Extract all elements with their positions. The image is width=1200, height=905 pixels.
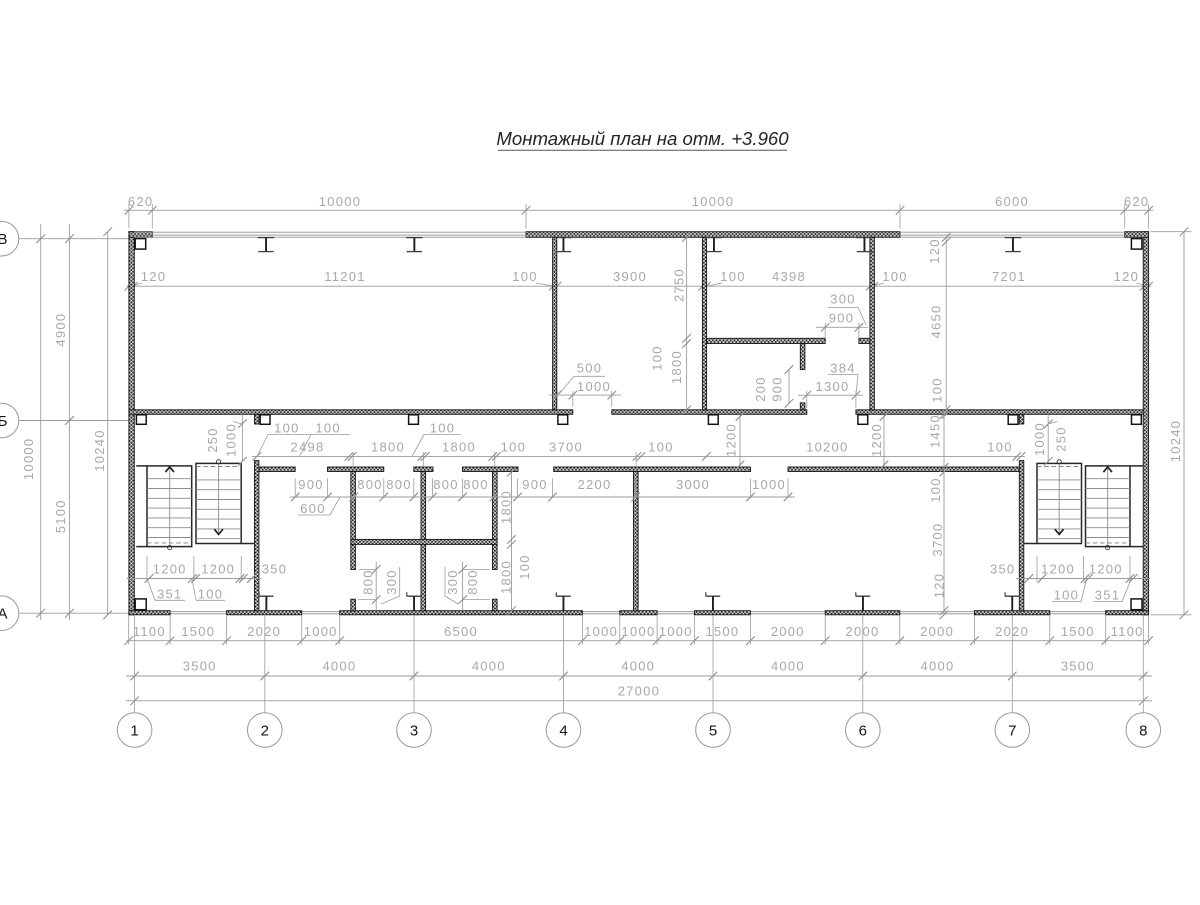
svg-text:1000: 1000 <box>577 379 611 394</box>
svg-text:300: 300 <box>445 569 460 594</box>
svg-text:100: 100 <box>430 421 455 436</box>
svg-text:2000: 2000 <box>771 624 805 639</box>
svg-text:620: 620 <box>1124 194 1149 209</box>
svg-text:250: 250 <box>1053 426 1068 451</box>
svg-text:8: 8 <box>1139 722 1147 739</box>
svg-text:7201: 7201 <box>992 269 1026 284</box>
svg-text:900: 900 <box>298 477 323 492</box>
svg-text:Б: Б <box>0 413 8 430</box>
svg-text:2750: 2750 <box>672 268 687 302</box>
svg-text:1450: 1450 <box>927 414 942 448</box>
svg-text:6000: 6000 <box>995 194 1029 209</box>
svg-text:1200: 1200 <box>1089 562 1123 577</box>
svg-text:1: 1 <box>130 722 138 739</box>
svg-text:800: 800 <box>463 477 488 492</box>
svg-text:2020: 2020 <box>247 624 281 639</box>
svg-text:27000: 27000 <box>618 683 660 698</box>
svg-text:800: 800 <box>386 477 411 492</box>
svg-text:4000: 4000 <box>472 659 506 674</box>
svg-text:10240: 10240 <box>92 429 107 471</box>
svg-text:100: 100 <box>720 269 745 284</box>
svg-text:300: 300 <box>384 569 399 594</box>
svg-text:3700: 3700 <box>930 523 945 557</box>
svg-text:10000: 10000 <box>319 194 361 209</box>
svg-text:4000: 4000 <box>621 659 655 674</box>
svg-text:384: 384 <box>830 361 855 376</box>
svg-text:2000: 2000 <box>920 624 954 639</box>
svg-text:900: 900 <box>770 376 785 401</box>
svg-text:100: 100 <box>648 439 673 454</box>
svg-text:5: 5 <box>709 722 717 739</box>
svg-text:11201: 11201 <box>324 269 365 284</box>
svg-text:А: А <box>0 606 8 623</box>
svg-text:1000: 1000 <box>584 624 618 639</box>
svg-text:300: 300 <box>830 291 855 306</box>
svg-text:100: 100 <box>928 477 943 502</box>
svg-text:620: 620 <box>128 194 153 209</box>
svg-text:3500: 3500 <box>1061 659 1095 674</box>
svg-text:100: 100 <box>198 586 223 601</box>
svg-text:120: 120 <box>1114 269 1139 284</box>
svg-text:100: 100 <box>315 421 340 436</box>
svg-text:1200: 1200 <box>869 423 884 457</box>
svg-text:1800: 1800 <box>371 439 405 454</box>
svg-text:120: 120 <box>932 573 947 598</box>
svg-text:600: 600 <box>300 501 325 516</box>
svg-text:100: 100 <box>517 554 532 579</box>
svg-text:4000: 4000 <box>921 659 955 674</box>
svg-text:2200: 2200 <box>578 477 612 492</box>
svg-text:1000: 1000 <box>224 423 239 457</box>
svg-text:900: 900 <box>522 477 547 492</box>
svg-text:100: 100 <box>650 345 665 370</box>
svg-text:2: 2 <box>261 722 269 739</box>
svg-text:5100: 5100 <box>53 499 68 533</box>
svg-text:4398: 4398 <box>772 269 806 284</box>
svg-text:1000: 1000 <box>752 477 786 492</box>
svg-text:100: 100 <box>274 421 299 436</box>
svg-text:10200: 10200 <box>806 439 848 454</box>
svg-text:1000: 1000 <box>659 624 693 639</box>
svg-text:4000: 4000 <box>771 659 805 674</box>
svg-text:100: 100 <box>1054 588 1079 603</box>
svg-text:1200: 1200 <box>153 562 187 577</box>
svg-text:100: 100 <box>501 439 526 454</box>
svg-text:200: 200 <box>753 376 768 401</box>
svg-text:3900: 3900 <box>613 269 647 284</box>
svg-text:1200: 1200 <box>201 562 235 577</box>
svg-text:В: В <box>0 231 8 248</box>
svg-text:351: 351 <box>157 586 182 601</box>
svg-text:800: 800 <box>361 569 376 594</box>
svg-text:1000: 1000 <box>1032 422 1047 456</box>
svg-text:350: 350 <box>262 562 287 577</box>
svg-text:3700: 3700 <box>549 439 583 454</box>
svg-text:1800: 1800 <box>442 439 476 454</box>
svg-text:100: 100 <box>512 269 537 284</box>
svg-text:350: 350 <box>990 562 1015 577</box>
svg-text:100: 100 <box>882 269 907 284</box>
svg-text:3500: 3500 <box>183 659 217 674</box>
svg-text:10240: 10240 <box>1168 420 1183 462</box>
svg-text:1800: 1800 <box>498 490 513 524</box>
svg-text:4900: 4900 <box>53 313 68 347</box>
svg-text:100: 100 <box>930 377 945 402</box>
svg-text:1500: 1500 <box>705 624 739 639</box>
svg-text:351: 351 <box>1095 588 1120 603</box>
svg-text:250: 250 <box>205 427 220 452</box>
svg-text:Монтажный план на отм. +3.960: Монтажный план на отм. +3.960 <box>496 128 789 149</box>
svg-text:1500: 1500 <box>181 624 215 639</box>
svg-text:1100: 1100 <box>1111 624 1144 639</box>
svg-text:1500: 1500 <box>1061 624 1095 639</box>
svg-text:800: 800 <box>433 477 458 492</box>
svg-text:4000: 4000 <box>322 659 356 674</box>
svg-text:3: 3 <box>410 722 418 739</box>
svg-text:6500: 6500 <box>444 624 478 639</box>
svg-text:1100: 1100 <box>133 624 166 639</box>
svg-text:1200: 1200 <box>1041 562 1075 577</box>
svg-text:1000: 1000 <box>622 624 656 639</box>
svg-text:1000: 1000 <box>304 624 338 639</box>
svg-text:1200: 1200 <box>724 423 739 457</box>
svg-text:4: 4 <box>559 722 567 739</box>
svg-text:7: 7 <box>1008 722 1016 739</box>
svg-text:10000: 10000 <box>21 438 36 480</box>
svg-text:900: 900 <box>829 311 854 326</box>
svg-text:1300: 1300 <box>816 379 850 394</box>
svg-text:4650: 4650 <box>929 305 944 339</box>
svg-text:120: 120 <box>141 269 166 284</box>
svg-text:1800: 1800 <box>669 350 684 384</box>
svg-text:1800: 1800 <box>498 560 513 594</box>
svg-text:500: 500 <box>577 360 602 375</box>
svg-text:100: 100 <box>987 439 1012 454</box>
svg-text:120: 120 <box>927 238 942 263</box>
svg-text:6: 6 <box>859 722 867 739</box>
svg-text:800: 800 <box>465 569 480 594</box>
svg-text:3000: 3000 <box>676 477 710 492</box>
svg-text:800: 800 <box>357 477 382 492</box>
svg-text:10000: 10000 <box>692 194 734 209</box>
